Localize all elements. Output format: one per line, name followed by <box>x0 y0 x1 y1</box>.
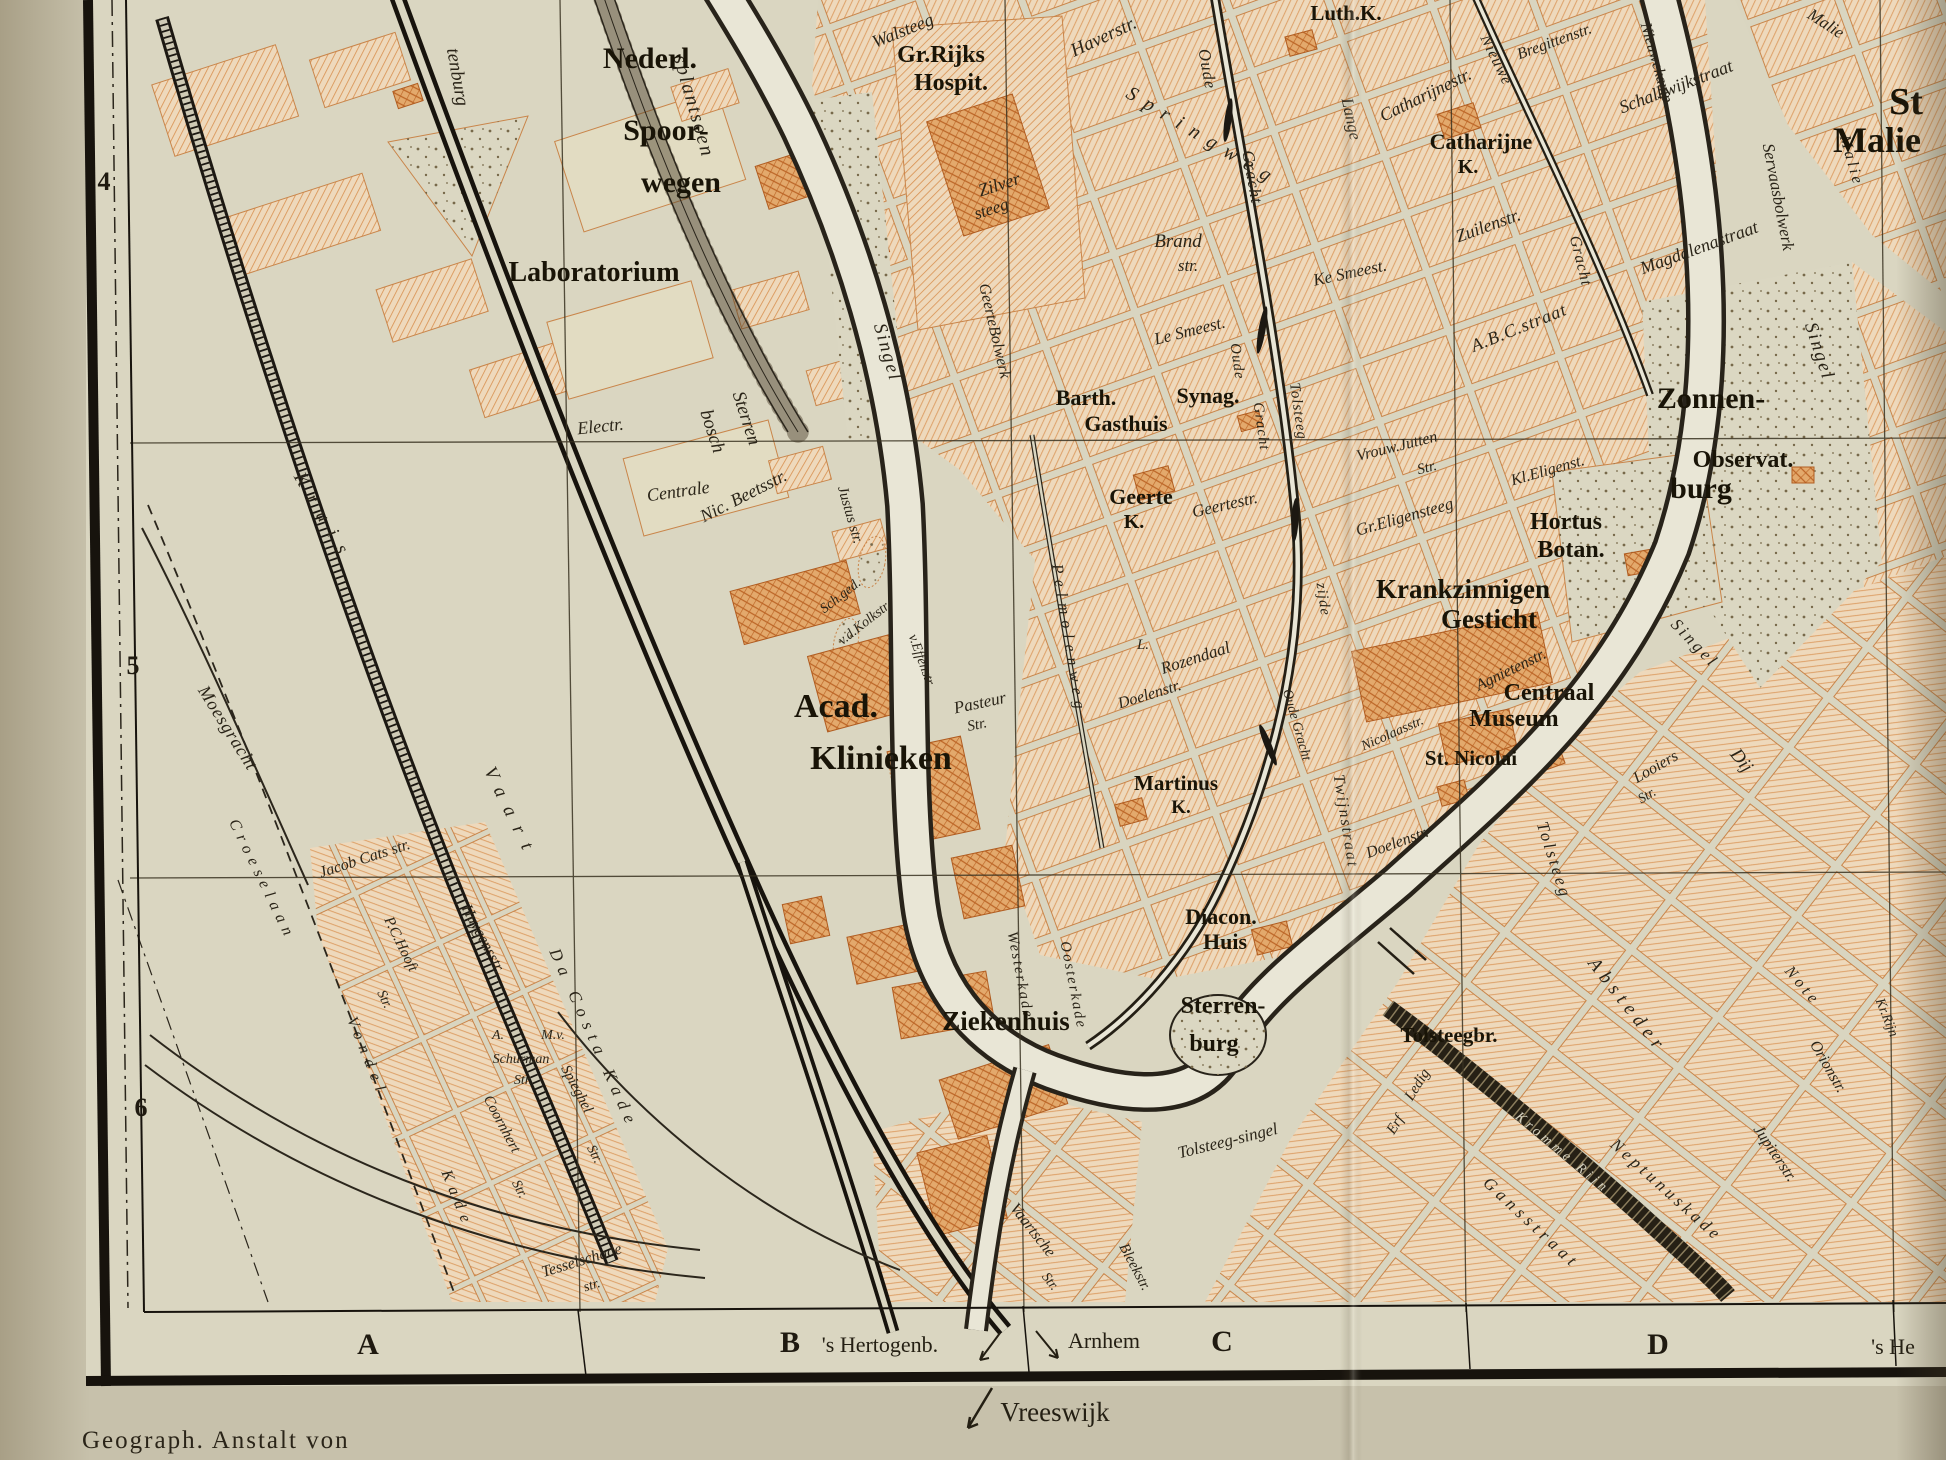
place-label: Martinus <box>1134 771 1218 795</box>
place-label: Botan. <box>1537 537 1604 563</box>
place-label: wegen <box>641 166 721 199</box>
place-label: Geerte <box>1109 484 1173 509</box>
place-label: Diacon. <box>1185 904 1257 929</box>
place-label: Acad. <box>794 688 878 725</box>
place-label: Sterren- <box>1181 993 1266 1019</box>
place-label: Spoor- <box>623 114 709 147</box>
map-canvas: tenburgsplantsoenWalsteegHaverstr.Spring… <box>0 0 1946 1460</box>
street-label: A. <box>491 1028 504 1043</box>
grid-column-letter: B <box>780 1326 800 1359</box>
grid-column-letter: A <box>357 1328 379 1361</box>
place-label: Zonnen- <box>1657 382 1765 415</box>
place-label: Gr.Rijks <box>897 42 985 68</box>
paper-crease <box>1340 0 1362 1460</box>
place-label: Barth. <box>1056 385 1117 410</box>
grid-row-number: 5 <box>127 651 140 680</box>
place-label: Centraal <box>1504 680 1595 706</box>
street-label: M.v. <box>540 1028 565 1043</box>
place-label: Hospit. <box>914 70 988 96</box>
street-label: L. <box>1136 637 1149 653</box>
place-label: K. <box>1458 156 1479 178</box>
street-label: str. <box>1178 256 1198 275</box>
paper-edge-shadow <box>1896 0 1946 1460</box>
place-label: Hortus <box>1530 509 1602 535</box>
place-label: Observat. <box>1693 447 1794 473</box>
direction-label: Arnhem <box>1068 1328 1140 1353</box>
place-label: Gesticht <box>1441 604 1537 634</box>
grid-column-letter: D <box>1647 1328 1669 1361</box>
place-label: Huis <box>1203 929 1247 954</box>
place-label: Krankzinnigen <box>1376 574 1550 604</box>
direction-label: 's Hertogenb. <box>822 1332 938 1357</box>
place-label: Synag. <box>1177 383 1240 408</box>
place-label: burg <box>1670 472 1732 505</box>
place-label: burg <box>1189 1031 1238 1057</box>
place-label: Tolsteegbr. <box>1400 1023 1497 1047</box>
map-caption: Geograph. Anstalt von <box>82 1427 350 1454</box>
place-label: Ziekenhuis <box>942 1006 1070 1036</box>
direction-label: Vreeswijk <box>1000 1397 1110 1427</box>
paper-left-margin <box>0 0 90 1460</box>
place-label: Laboratorium <box>508 257 679 288</box>
grid-row-number: 4 <box>98 167 111 196</box>
place-label: Gasthuis <box>1084 411 1168 436</box>
street-label: Str. <box>514 1073 532 1088</box>
street-label: Schurman <box>493 1052 550 1067</box>
antique-map-page: tenburgsplantsoenWalsteegHaverstr.Spring… <box>0 0 1946 1460</box>
place-label: K. <box>1171 797 1191 818</box>
place-label: Nederl. <box>603 42 697 75</box>
street-label: Brand <box>1154 231 1202 252</box>
grid-column-letter: C <box>1211 1325 1233 1358</box>
place-label: K. <box>1124 511 1145 533</box>
place-label: St. Nicolai <box>1425 746 1517 770</box>
place-label: Catharijne <box>1430 129 1533 154</box>
grid-row-number: 6 <box>135 1093 148 1122</box>
place-label: Klinieken <box>810 740 952 777</box>
place-label: Museum <box>1469 706 1558 732</box>
